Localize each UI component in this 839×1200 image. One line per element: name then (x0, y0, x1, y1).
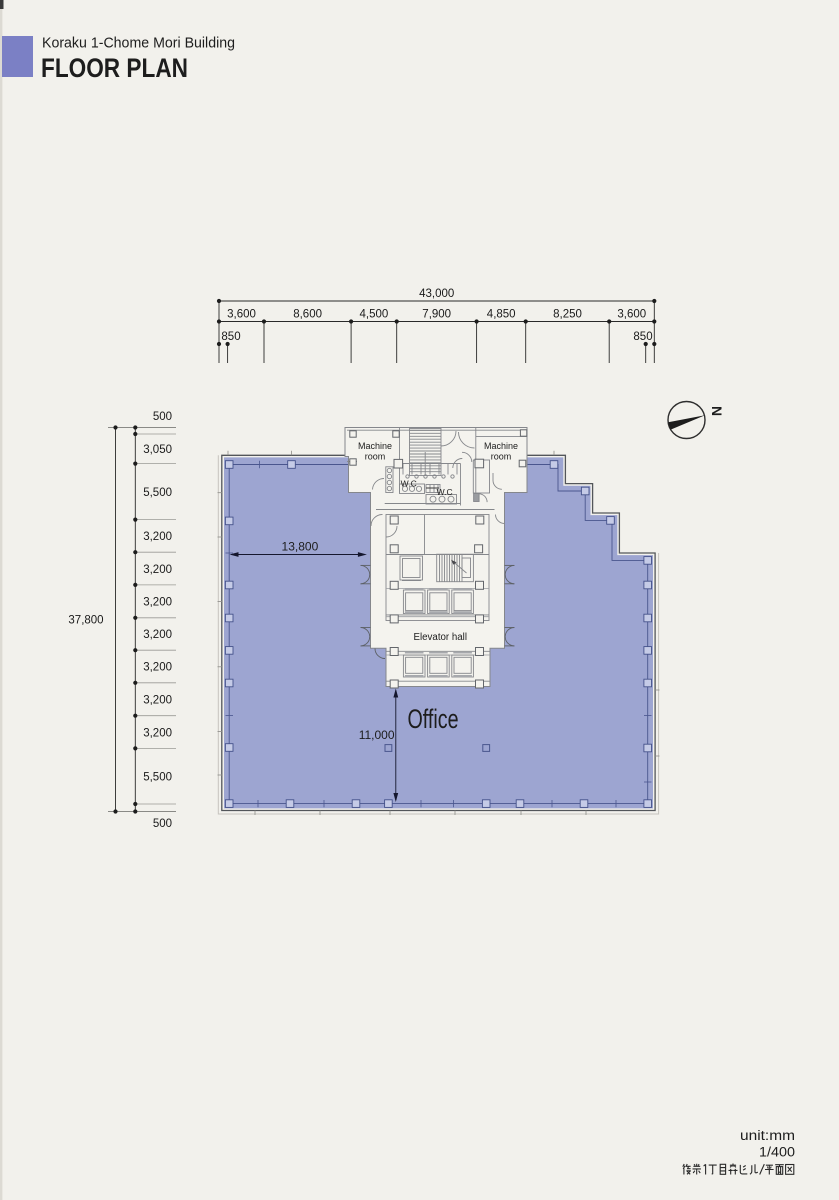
svg-text:11,000: 11,000 (359, 728, 395, 742)
svg-text:Machine: Machine (484, 441, 518, 451)
svg-text:W.C: W.C (401, 478, 417, 488)
svg-text:13,800: 13,800 (282, 540, 319, 554)
svg-text:4,850: 4,850 (487, 309, 516, 321)
svg-text:3,600: 3,600 (617, 309, 646, 321)
svg-text:850: 850 (221, 331, 240, 343)
svg-text:Koraku 1-Chome Mori Building: Koraku 1-Chome Mori Building (42, 35, 235, 52)
svg-text:FLOOR PLAN: FLOOR PLAN (41, 53, 188, 83)
svg-text:5,500: 5,500 (143, 487, 172, 499)
svg-text:4,500: 4,500 (360, 309, 389, 321)
svg-text:3,200: 3,200 (143, 597, 172, 609)
svg-text:1/400: 1/400 (759, 1145, 795, 1160)
svg-text:Elevator hall: Elevator hall (414, 632, 468, 643)
svg-text:room: room (365, 452, 386, 462)
svg-text:room: room (491, 452, 512, 462)
svg-text:850: 850 (633, 331, 652, 343)
svg-text:3,200: 3,200 (143, 564, 172, 576)
svg-text:37,800: 37,800 (68, 615, 103, 627)
svg-text:7,900: 7,900 (422, 309, 451, 321)
svg-text:5,500: 5,500 (143, 771, 172, 783)
svg-text:3,200: 3,200 (143, 662, 172, 674)
svg-text:unit:mm: unit:mm (740, 1128, 795, 1143)
svg-text:3,200: 3,200 (143, 695, 172, 707)
svg-text:8,250: 8,250 (553, 309, 582, 321)
svg-text:3,200: 3,200 (143, 531, 172, 543)
svg-text:3,600: 3,600 (227, 309, 256, 321)
svg-text:W.C: W.C (437, 487, 453, 497)
svg-text:3,200: 3,200 (143, 629, 172, 641)
svg-text:Office: Office (408, 704, 459, 734)
svg-text:500: 500 (153, 818, 172, 830)
svg-text:N: N (709, 406, 725, 416)
svg-text:43,000: 43,000 (419, 288, 454, 300)
svg-text:500: 500 (153, 411, 172, 423)
svg-text:8,600: 8,600 (293, 309, 322, 321)
svg-text:Machine: Machine (358, 441, 392, 451)
svg-text:3,200: 3,200 (143, 727, 172, 739)
svg-text:3,050: 3,050 (143, 444, 172, 456)
